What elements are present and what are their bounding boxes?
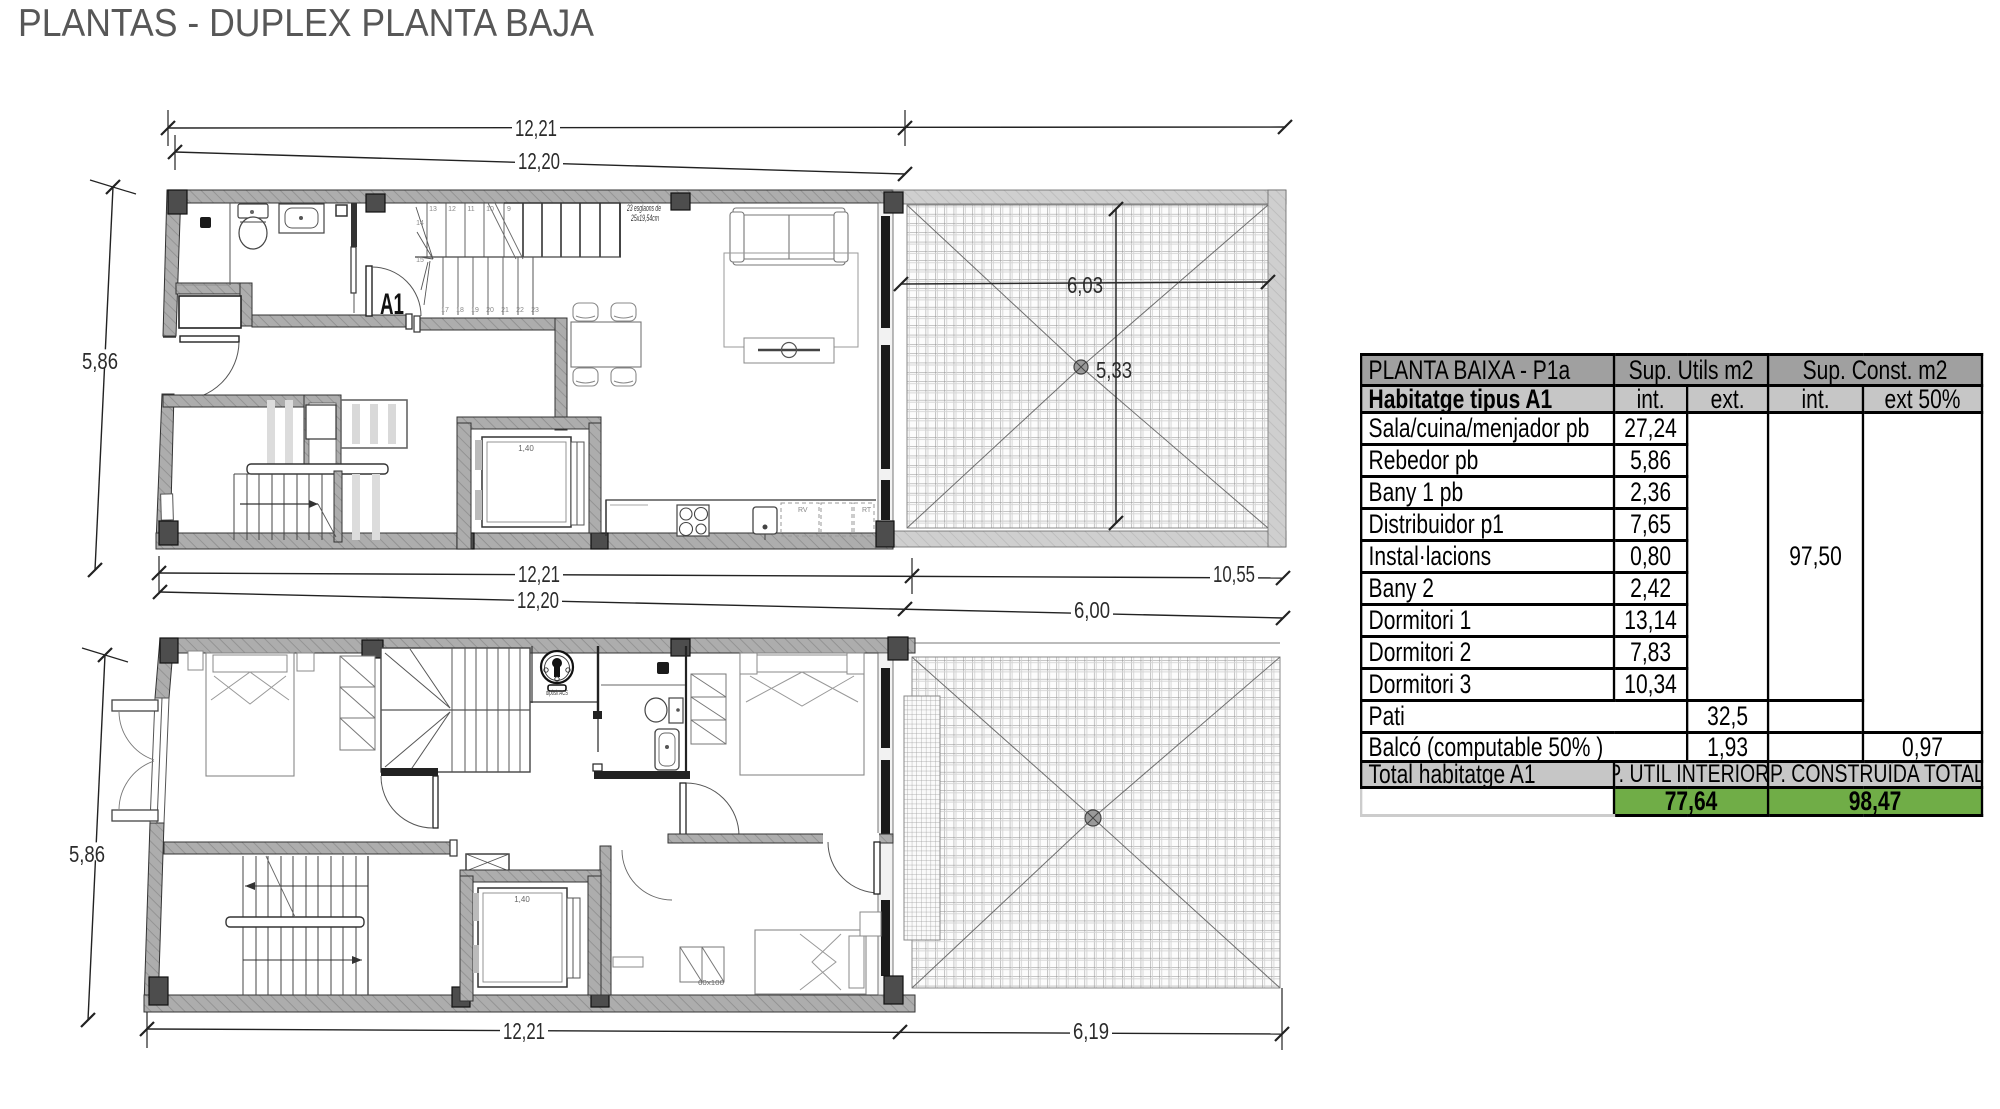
svg-text:60x100: 60x100: [698, 978, 724, 987]
svg-text:13: 13: [429, 206, 437, 213]
svg-text:22: 22: [516, 307, 524, 314]
svg-text:10: 10: [486, 206, 494, 213]
svg-text:6,19: 6,19: [1073, 1018, 1109, 1044]
svg-text:14: 14: [416, 220, 424, 227]
svg-text:9: 9: [507, 206, 511, 213]
svg-text:A1: A1: [380, 288, 404, 321]
svg-text:6,00: 6,00: [1074, 597, 1110, 623]
svg-text:5,33: 5,33: [1096, 357, 1132, 383]
svg-text:19: 19: [471, 307, 479, 314]
svg-text:6,03: 6,03: [1067, 272, 1103, 298]
svg-text:23 esglaons de: 23 esglaons de: [626, 203, 661, 213]
svg-text:1,40: 1,40: [514, 895, 530, 904]
svg-text:17: 17: [441, 307, 449, 314]
svg-text:21: 21: [501, 307, 509, 314]
svg-text:10,55: 10,55: [1213, 561, 1255, 587]
svg-text:25x19,54cm: 25x19,54cm: [630, 213, 659, 223]
svg-text:20: 20: [486, 307, 494, 314]
svg-text:23: 23: [531, 307, 539, 314]
svg-text:15: 15: [416, 257, 424, 264]
svg-text:12: 12: [448, 206, 456, 213]
svg-text:12,20: 12,20: [517, 587, 559, 613]
svg-text:dipòsit ACS: dipòsit ACS: [546, 690, 568, 697]
svg-text:RV: RV: [798, 507, 808, 514]
svg-text:5,86: 5,86: [69, 841, 105, 867]
svg-text:5,86: 5,86: [82, 348, 118, 374]
svg-text:12,21: 12,21: [515, 115, 557, 141]
svg-text:12,20: 12,20: [518, 148, 560, 174]
svg-text:12,21: 12,21: [503, 1018, 545, 1044]
svg-text:18: 18: [456, 307, 464, 314]
svg-text:PLANTAS - DUPLEX PLANTA BAJA: PLANTAS - DUPLEX PLANTA BAJA: [18, 2, 594, 45]
svg-text:12,21: 12,21: [518, 561, 560, 587]
svg-text:RT: RT: [862, 507, 872, 514]
svg-text:1,40: 1,40: [518, 444, 534, 453]
svg-text:11: 11: [467, 206, 474, 213]
